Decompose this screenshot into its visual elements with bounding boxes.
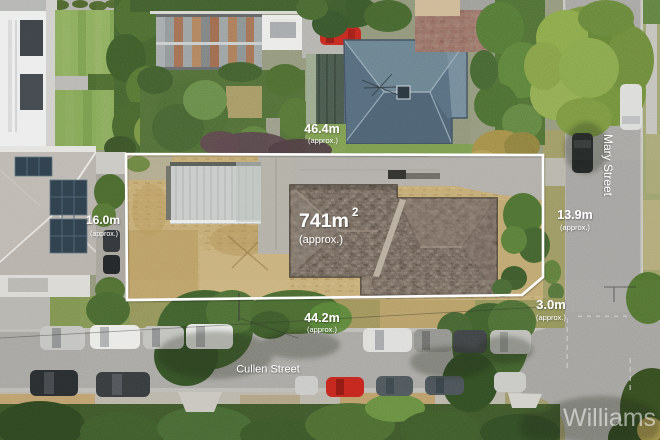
- svg-text:3.0m: 3.0m: [536, 297, 566, 312]
- svg-text:(approx.): (approx.): [560, 223, 591, 232]
- svg-text:Williams: Williams: [563, 404, 656, 432]
- svg-text:(approx.): (approx.): [307, 325, 338, 334]
- svg-text:741m: 741m: [299, 210, 349, 232]
- svg-text:16.0m: 16.0m: [86, 213, 120, 227]
- svg-text:Mary Street: Mary Street: [601, 134, 615, 197]
- svg-text:Cullen Street: Cullen Street: [236, 364, 300, 376]
- svg-text:46.4m: 46.4m: [304, 122, 339, 136]
- svg-text:(approx.): (approx.): [536, 313, 567, 322]
- svg-text:(approx.): (approx.): [90, 231, 118, 238]
- svg-text:(approx.): (approx.): [299, 234, 343, 246]
- svg-text:44.2m: 44.2m: [304, 311, 339, 325]
- svg-text:(approx.): (approx.): [308, 136, 339, 145]
- svg-text:2: 2: [352, 207, 358, 219]
- svg-text:13.9m: 13.9m: [557, 208, 592, 222]
